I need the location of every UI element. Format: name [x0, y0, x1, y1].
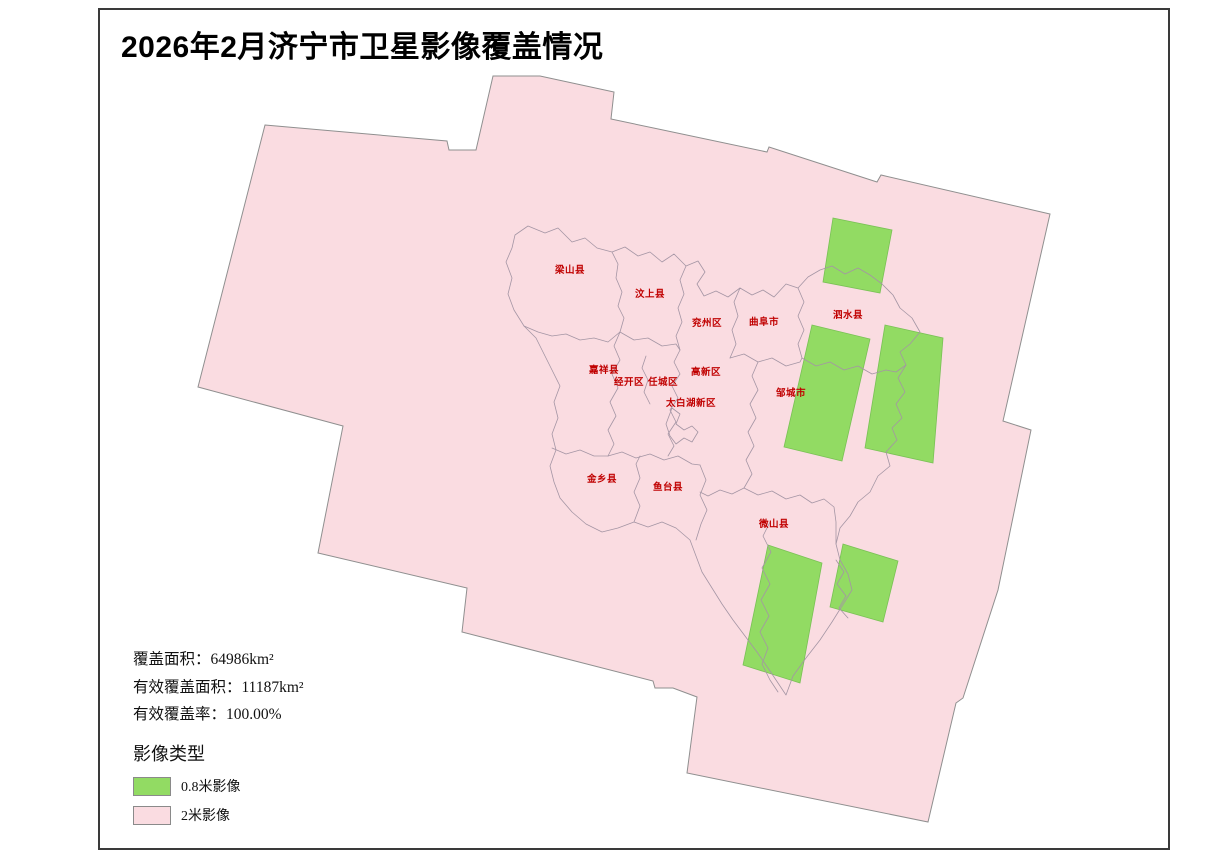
stat-effective-coverage-area: 有效覆盖面积：11187km² — [133, 674, 304, 702]
coverage-stats: 覆盖面积：64986km² 有效覆盖面积：11187km² 有效覆盖率：100.… — [133, 646, 304, 729]
district-label-gaoxin: 高新区 — [691, 366, 721, 378]
district-label-jinxiang: 金乡县 — [586, 473, 617, 485]
legend-label-08m: 0.8米影像 — [181, 776, 241, 796]
district-label-weishan: 微山县 — [758, 518, 789, 530]
district-label-sishui: 泗水县 — [833, 309, 863, 321]
page-title: 2026年2月济宁市卫星影像覆盖情况 — [121, 22, 603, 66]
district-label-jingkai: 经开区 — [614, 376, 644, 388]
coverage-map: 梁山县 汶上县 兖州区 曲阜市 泗水县 嘉祥县 经开区 任城区 高新区 邹城市 … — [0, 0, 1225, 866]
coverage-patch-08m — [823, 218, 892, 293]
legend-item-08m: 0.8米影像 — [133, 776, 241, 796]
legend-swatch-2m-icon — [133, 806, 171, 825]
legend-swatch-08m-icon — [133, 777, 171, 796]
district-label-zoucheng: 邹城市 — [775, 387, 806, 399]
district-label-jiaxiang: 嘉祥县 — [588, 364, 619, 376]
stat-effective-coverage-rate: 有效覆盖率：100.00% — [133, 701, 304, 729]
district-label-liangshan: 梁山县 — [554, 264, 585, 276]
district-label-rencheng: 任城区 — [647, 376, 678, 388]
stat-coverage-area: 覆盖面积：64986km² — [133, 646, 304, 674]
district-label-yutai: 鱼台县 — [653, 481, 683, 493]
district-label-yanzhou: 兖州区 — [692, 317, 722, 329]
legend: 影像类型 0.8米影像 2米影像 — [133, 740, 241, 834]
legend-title: 影像类型 — [133, 740, 241, 766]
legend-label-2m: 2米影像 — [181, 805, 230, 825]
legend-item-2m: 2米影像 — [133, 805, 241, 825]
district-label-qufu: 曲阜市 — [749, 316, 779, 328]
district-label-wenshang: 汶上县 — [635, 288, 665, 300]
district-label-taibaihu: 太白湖新区 — [666, 397, 716, 409]
